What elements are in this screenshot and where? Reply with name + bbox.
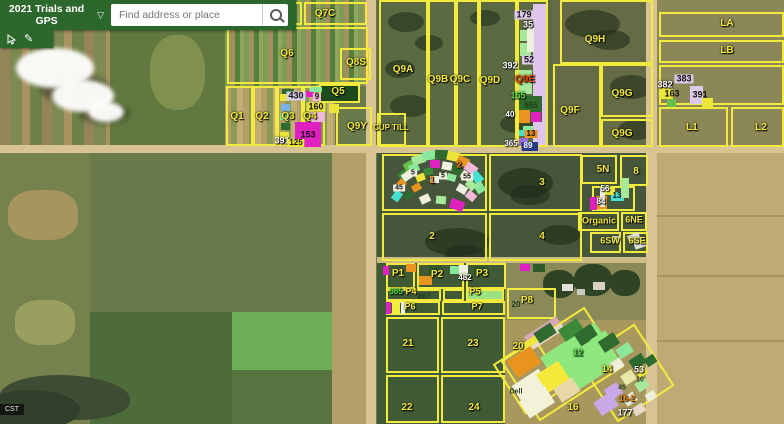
plot-box[interactable] <box>281 123 290 130</box>
plot-box[interactable] <box>621 178 629 198</box>
map-label-40: 40 <box>506 111 515 119</box>
map-label-organic: Organic <box>582 217 616 226</box>
map-label-q7c: Q7C <box>315 9 336 19</box>
map-label-p2: P2 <box>431 270 443 280</box>
map-label-383: 383 <box>674 75 693 84</box>
map-label-12: 12 <box>573 349 583 358</box>
map-label-p7: P7 <box>471 303 482 312</box>
parcel-q9d[interactable] <box>479 0 517 147</box>
map-label-84: 84 <box>597 198 606 206</box>
map-label-10: 10 <box>636 377 644 384</box>
map-label-q1: Q1 <box>230 112 243 122</box>
plot-box[interactable] <box>392 302 400 314</box>
pointer-icon <box>7 34 17 45</box>
map-label-21: 21 <box>402 339 413 349</box>
parcel-field-22[interactable] <box>386 375 439 423</box>
map-label-q4: Q4 <box>303 112 316 122</box>
map-label-365: 365 <box>504 140 517 148</box>
map-label-155: 155 <box>510 92 525 101</box>
search-icon <box>270 9 282 21</box>
map-label-430: 430 <box>286 92 305 101</box>
map-label-177: 177 <box>617 409 632 418</box>
map-label-45: 45 <box>618 385 626 392</box>
map-label-cup-till: CUP TILL <box>373 124 409 132</box>
map-label-q9g: Q9G <box>611 89 632 99</box>
map-label-4: 4 <box>539 232 545 242</box>
map-label-q6: Q6 <box>280 49 293 59</box>
map-label-q8s: Q8S <box>346 58 366 68</box>
map-label-8: 8 <box>633 167 639 177</box>
map-label-52: 52 <box>522 56 536 65</box>
map-label-24: 24 <box>468 403 479 413</box>
map-label-365: 365 <box>389 288 402 296</box>
app-title: 2021 Trials and GPS <box>0 3 93 27</box>
map-label-q9d: Q9D <box>480 76 501 86</box>
map-label-5n: 5N <box>597 165 610 175</box>
plot-box[interactable] <box>527 27 534 52</box>
search-input[interactable] <box>111 4 262 26</box>
app-header: 2021 Trials and GPS ▽ <box>0 0 296 30</box>
map-label-6se: 6SE <box>628 237 645 246</box>
parcel-l-mid[interactable] <box>659 65 784 105</box>
map-label-160: 160 <box>306 103 325 112</box>
select-tool-button[interactable] <box>7 34 17 45</box>
map-label-q9f: Q9F <box>560 106 579 116</box>
map-label-20: 20 <box>512 301 521 309</box>
map-label-23: 23 <box>467 339 478 349</box>
map-label-q9c: Q9C <box>450 75 471 85</box>
map-label-6ne: 6NE <box>625 216 643 225</box>
map-label-89: 89 <box>522 142 535 150</box>
map-label-482: 482 <box>458 274 471 282</box>
map-label-391: 391 <box>692 91 707 100</box>
map-label-867: 867 <box>417 293 430 301</box>
map-label-q5: Q5 <box>331 87 344 97</box>
search-button[interactable] <box>262 4 288 26</box>
map-canvas[interactable]: Q7CQ6Q8SQ1Q2Q3Q4Q5Q9Y4301609153391125CUP… <box>0 0 784 424</box>
map-label-l2: L2 <box>755 123 767 133</box>
map-label-13: 13 <box>525 130 538 138</box>
map-label-lb: LB <box>720 46 733 56</box>
map-label-p8: P8 <box>521 296 533 306</box>
map-label-p5: P5 <box>469 288 480 297</box>
map-label-q3: Q3 <box>281 112 294 122</box>
plot-box[interactable] <box>667 99 676 107</box>
plot-box[interactable] <box>281 104 290 111</box>
plot-box[interactable] <box>531 112 541 122</box>
map-label-655: 655 <box>524 102 537 110</box>
map-label-p3: P3 <box>476 269 488 279</box>
map-label-22: 22 <box>401 403 412 413</box>
map-label-55: 55 <box>461 174 473 181</box>
map-label-2: 2 <box>456 161 461 170</box>
parcel-q9h[interactable] <box>560 0 653 64</box>
map-label-35: 35 <box>523 21 533 30</box>
map-label-5: 5 <box>409 170 417 177</box>
pencil-icon: ✎ <box>24 34 33 45</box>
map-label-14: 14 <box>601 365 612 375</box>
map-toolbar: ✎ <box>0 30 53 48</box>
map-label-179: 179 <box>514 11 533 20</box>
map-label-q2: Q2 <box>255 112 268 122</box>
map-label-p4: P4 <box>405 288 416 297</box>
map-label-1: 1 <box>429 176 435 186</box>
draw-tool-button[interactable]: ✎ <box>24 34 33 45</box>
map-attribution: CST <box>0 404 24 415</box>
parcel-field-24[interactable] <box>441 375 505 423</box>
map-label-45: 45 <box>393 185 405 192</box>
map-label-5: 5 <box>439 173 447 180</box>
parcel-field-3[interactable] <box>489 154 582 211</box>
plot-box[interactable] <box>520 264 530 271</box>
map-label-2: 2 <box>429 232 435 242</box>
map-label-q9y: Q9Y <box>347 122 367 132</box>
chevron-down-icon[interactable]: ▽ <box>97 10 104 21</box>
map-label-p1: P1 <box>392 269 404 279</box>
map-label-q9a: Q9A <box>393 65 414 75</box>
search-bar <box>111 4 288 26</box>
map-label-q9g: Q9G <box>611 129 632 139</box>
plot-box[interactable] <box>436 196 447 205</box>
plot-box[interactable] <box>406 264 416 272</box>
map-label-q9e: Q9E <box>515 75 535 85</box>
plot-box[interactable] <box>383 266 389 275</box>
map-label-p6: P6 <box>404 303 415 312</box>
map-label-la: LA <box>720 19 733 29</box>
map-label-16-2: 16-2 <box>619 395 635 403</box>
plot-box[interactable] <box>329 104 339 113</box>
map-label-125: 125 <box>287 139 304 147</box>
map-label-q9b: Q9B <box>428 75 449 85</box>
plot-box[interactable] <box>519 110 530 123</box>
map-label-392: 392 <box>502 62 517 71</box>
map-label-dell: Dell <box>510 389 523 396</box>
plot-box[interactable] <box>533 264 545 272</box>
map-label-16: 16 <box>567 403 578 413</box>
map-label-53: 53 <box>634 366 644 375</box>
map-label-20: 20 <box>512 342 523 352</box>
map-label-9: 9 <box>313 93 321 101</box>
map-label-6sw: 6SW <box>600 237 620 246</box>
map-label-163: 163 <box>664 90 679 99</box>
map-feature-layer[interactable]: Q7CQ6Q8SQ1Q2Q3Q4Q5Q9Y4301609153391125CUP… <box>0 0 784 424</box>
map-label-3: 3 <box>539 178 545 188</box>
plot-box[interactable] <box>386 302 391 314</box>
map-label-q9h: Q9H <box>585 35 606 45</box>
parcel-p4b[interactable] <box>443 289 464 301</box>
map-label-l1: L1 <box>686 123 698 133</box>
parcel-field-4[interactable] <box>489 213 582 261</box>
map-label-56: 56 <box>601 185 610 193</box>
map-label-13: 13 <box>613 192 622 200</box>
